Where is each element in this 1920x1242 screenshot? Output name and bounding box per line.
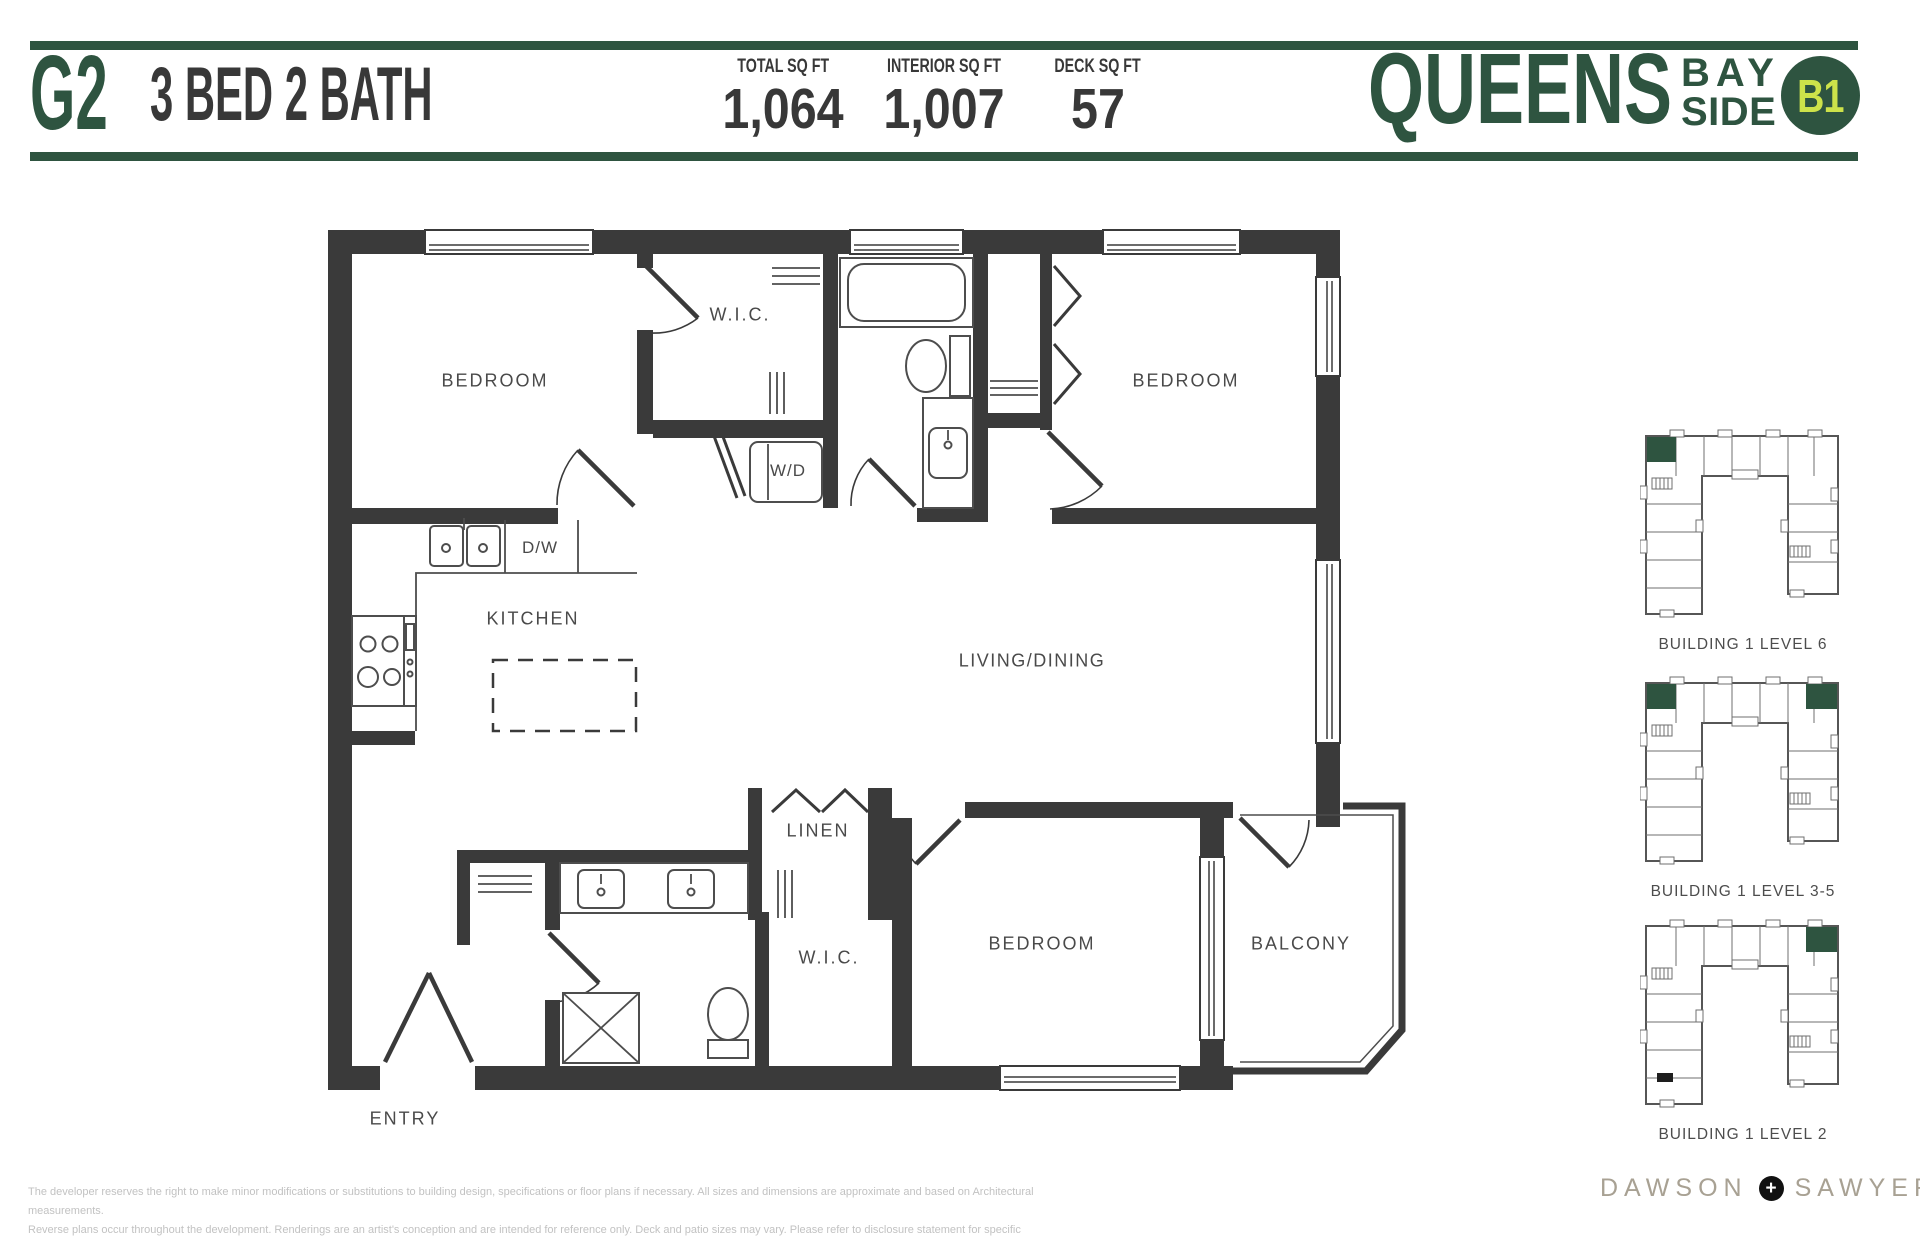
keyplate-diagram	[1640, 918, 1844, 1114]
service-marker	[1657, 1073, 1673, 1082]
disclaimer-line-2: Reverse plans occur throughout the devel…	[28, 1221, 1038, 1242]
plus-icon: +	[1759, 1176, 1784, 1201]
floor-plan-drawing	[0, 0, 1920, 1242]
room-label-kitchen: KITCHEN	[486, 609, 579, 630]
room-label-bedroom-1: BEDROOM	[441, 371, 548, 392]
developer-name-right: SAWYER	[1795, 1174, 1920, 1203]
keyplate-diagram	[1640, 428, 1844, 624]
windows	[425, 230, 1340, 1090]
unit-location-marker	[1806, 684, 1837, 709]
unit-location-marker	[1806, 927, 1837, 952]
keyplate-diagram	[1640, 675, 1844, 871]
keyplate-caption: BUILDING 1 LEVEL 3-5	[1640, 883, 1846, 901]
disclaimer: The developer reserves the right to make…	[28, 1183, 1038, 1242]
unit-location-marker	[1647, 684, 1676, 709]
keyplate-caption: BUILDING 1 LEVEL 2	[1640, 1126, 1846, 1144]
keyplate-level-3-5: BUILDING 1 LEVEL 3-5	[1640, 675, 1846, 901]
room-label-wic-1: W.I.C.	[710, 305, 771, 326]
developer-name-left: DAWSON	[1600, 1174, 1748, 1203]
keyplate-caption: BUILDING 1 LEVEL 6	[1640, 636, 1846, 654]
disclaimer-line-1: The developer reserves the right to make…	[28, 1183, 1038, 1221]
room-label-bedroom-2: BEDROOM	[1132, 371, 1239, 392]
unit-location-marker	[1647, 437, 1676, 462]
room-label-dishwasher: D/W	[522, 538, 558, 558]
room-label-washer-dryer: W/D	[770, 461, 806, 481]
keyplate-level-2: BUILDING 1 LEVEL 2	[1640, 918, 1846, 1144]
room-label-wic-2: W.I.C.	[799, 948, 860, 969]
room-label-entry: ENTRY	[370, 1109, 441, 1130]
room-label-bedroom-3: BEDROOM	[988, 934, 1095, 955]
room-label-living-dining: LIVING/DINING	[959, 651, 1106, 672]
keyplate-level-6: BUILDING 1 LEVEL 6	[1640, 428, 1846, 654]
floorplan-sheet: G2 3 BED 2 BATH TOTAL SQ FT 1,064 INTERI…	[0, 0, 1920, 1242]
developer-logo: DAWSON + SAWYER	[1600, 1174, 1920, 1203]
room-label-balcony: BALCONY	[1251, 934, 1351, 955]
room-label-linen: LINEN	[786, 821, 849, 842]
